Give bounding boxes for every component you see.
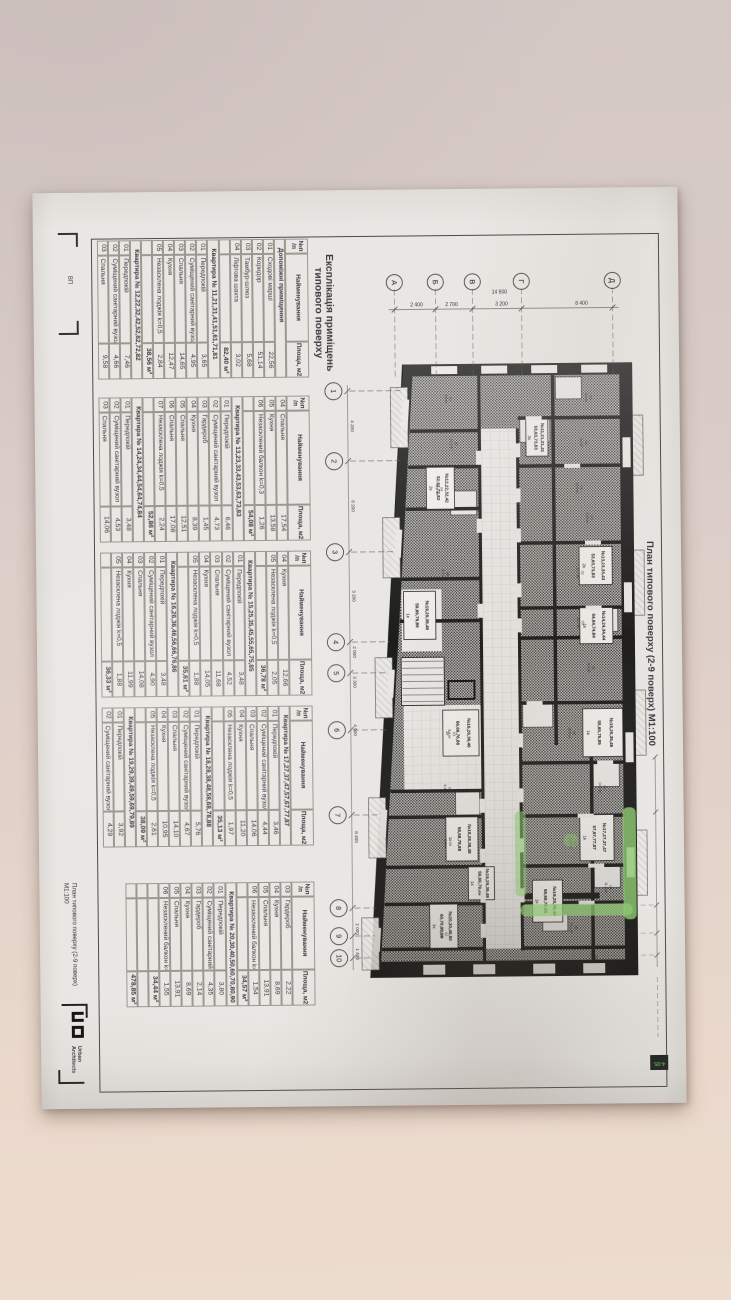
svg-text:3 200: 3 200 bbox=[495, 301, 508, 307]
svg-text:1: 1 bbox=[329, 389, 336, 393]
svg-text:3 300: 3 300 bbox=[352, 676, 357, 688]
svg-text:В: В bbox=[468, 279, 477, 284]
svg-text:3: 3 bbox=[331, 550, 338, 554]
svg-text:3 200: 3 200 bbox=[351, 590, 356, 602]
svg-text:7: 7 bbox=[333, 813, 340, 817]
svg-text:А: А bbox=[390, 280, 399, 285]
svg-text:2: 2 bbox=[330, 459, 337, 463]
svg-text:10: 10 bbox=[335, 954, 342, 962]
svg-text:8 400: 8 400 bbox=[354, 831, 359, 843]
svg-text:Д: Д bbox=[608, 278, 617, 283]
svg-text:2 000: 2 000 bbox=[352, 646, 357, 658]
svg-text:9: 9 bbox=[334, 934, 341, 938]
svg-text:14 900: 14 900 bbox=[492, 289, 508, 295]
svg-text:2 400: 2 400 bbox=[410, 302, 423, 308]
svg-text:Б: Б bbox=[431, 280, 440, 285]
svg-text:1 400: 1 400 bbox=[355, 948, 360, 960]
svg-text:6: 6 bbox=[332, 728, 339, 732]
svg-text:5: 5 bbox=[332, 671, 339, 675]
svg-text:2 000: 2 000 bbox=[355, 923, 360, 935]
svg-text:4: 4 bbox=[331, 640, 338, 644]
svg-text:8 400: 8 400 bbox=[575, 301, 588, 307]
svg-text:8 200: 8 200 bbox=[351, 500, 356, 512]
svg-text:2 700: 2 700 bbox=[445, 302, 458, 308]
svg-text:Г: Г bbox=[517, 279, 526, 283]
svg-text:4 900: 4 900 bbox=[353, 724, 358, 736]
svg-text:4 200: 4 200 bbox=[350, 420, 355, 432]
svg-text:8: 8 bbox=[334, 906, 341, 910]
